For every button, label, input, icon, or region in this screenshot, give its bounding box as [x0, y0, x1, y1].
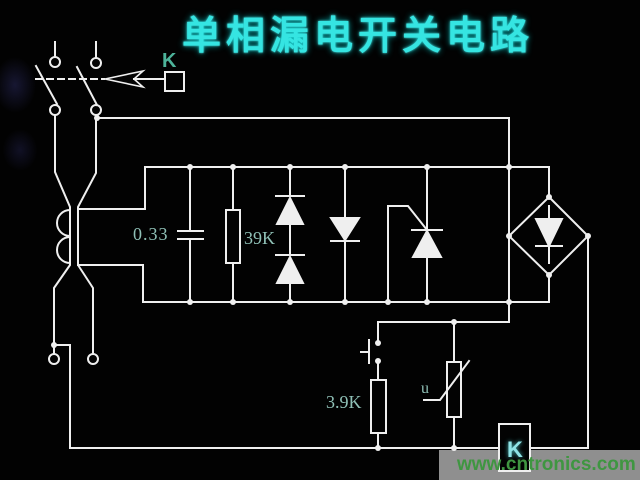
- bridge-diode-triangle: [536, 219, 562, 246]
- resistor-body: [226, 210, 240, 263]
- varistor: [424, 322, 469, 448]
- thyristor: [388, 167, 442, 302]
- load-terminal: [49, 354, 59, 364]
- trip-actuator-box: [165, 72, 184, 91]
- diode-single: [331, 167, 359, 302]
- capacitor-value-label: 0.33: [133, 224, 169, 245]
- main-switch: [36, 42, 104, 115]
- circuit-schematic-page: 单相漏电开关电路 K 0.33 39K 3.9K u K www.cntroni…: [0, 0, 640, 480]
- diode-pair: [276, 167, 304, 302]
- diode-triangle-up: [277, 257, 303, 283]
- current-transformer: [49, 115, 145, 364]
- switch-terminal: [91, 58, 101, 68]
- capacitor: [178, 167, 203, 302]
- test-resistor-value-label: 3.9K: [326, 392, 362, 413]
- bridge-rectifier: [509, 197, 588, 448]
- circuit-diagram: [0, 0, 640, 480]
- ct-winding-arc: [57, 210, 70, 236]
- load-terminal: [88, 354, 98, 364]
- thyristor-triangle: [413, 231, 441, 257]
- diode-triangle-up: [277, 198, 303, 224]
- ct-winding-arc: [57, 237, 70, 263]
- ct-tap-bottom: [78, 265, 143, 302]
- switch-terminal: [50, 105, 60, 115]
- varistor-body: [447, 362, 461, 417]
- diode-triangle-down: [331, 218, 359, 240]
- resistor-3-9k: [371, 380, 386, 448]
- resistor-body: [371, 380, 386, 433]
- resistor-39k: [226, 167, 240, 302]
- shunt-resistor-value-label: 39K: [244, 228, 275, 249]
- thyristor-gate: [388, 206, 427, 230]
- test-button: [361, 322, 381, 380]
- button-contact: [375, 340, 381, 346]
- switch-terminal: [91, 105, 101, 115]
- page-title: 单相漏电开关电路: [182, 5, 632, 61]
- watermark-text: www.cntronics.com: [457, 454, 636, 476]
- switch-terminal: [50, 57, 60, 67]
- varistor-label: u: [421, 380, 429, 398]
- switch-blade: [36, 66, 57, 104]
- top-rail: [145, 167, 549, 197]
- trip-coil-label: K: [162, 50, 176, 73]
- feed-drop-line: [378, 118, 509, 322]
- switch-blade: [77, 67, 97, 105]
- phase-wire-right: [78, 115, 96, 354]
- trip-linkage: [105, 71, 184, 91]
